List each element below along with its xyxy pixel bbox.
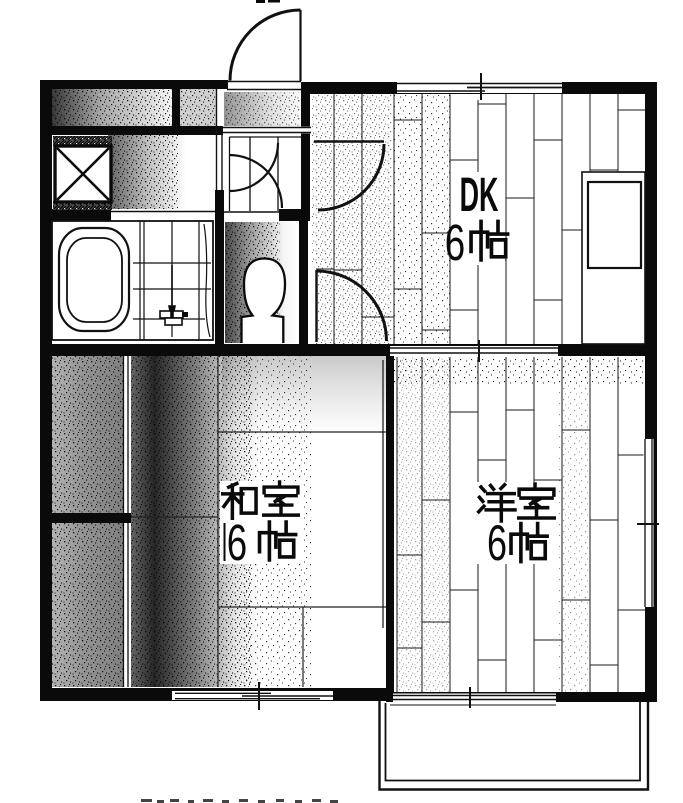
- svg-text:6: 6: [487, 516, 507, 571]
- svg-text:DK: DK: [460, 169, 499, 222]
- svg-text:6: 6: [445, 215, 465, 271]
- svg-text:6: 6: [227, 515, 247, 571]
